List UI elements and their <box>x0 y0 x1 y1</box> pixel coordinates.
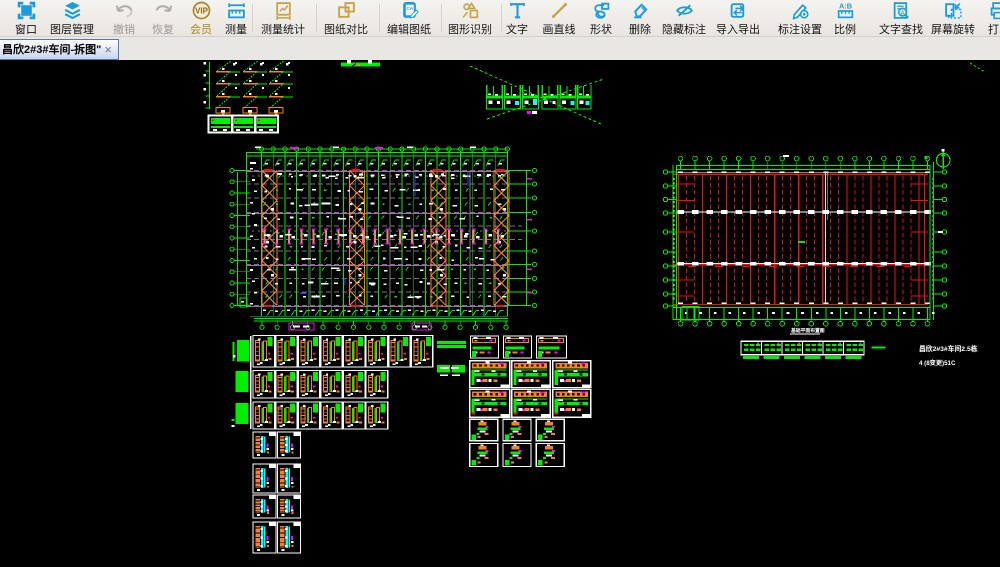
svg-text:昌欣2#3#车间2.5栋: 昌欣2#3#车间2.5栋 <box>919 344 978 353</box>
svg-text:A: A <box>900 10 904 16</box>
svg-text:A:B: A:B <box>838 1 851 10</box>
svg-text:基础平面布置图: 基础平面布置图 <box>791 327 825 334</box>
svg-text:CA: CA <box>406 6 413 12</box>
svg-text:4 (8变更)51C: 4 (8变更)51C <box>919 359 956 367</box>
